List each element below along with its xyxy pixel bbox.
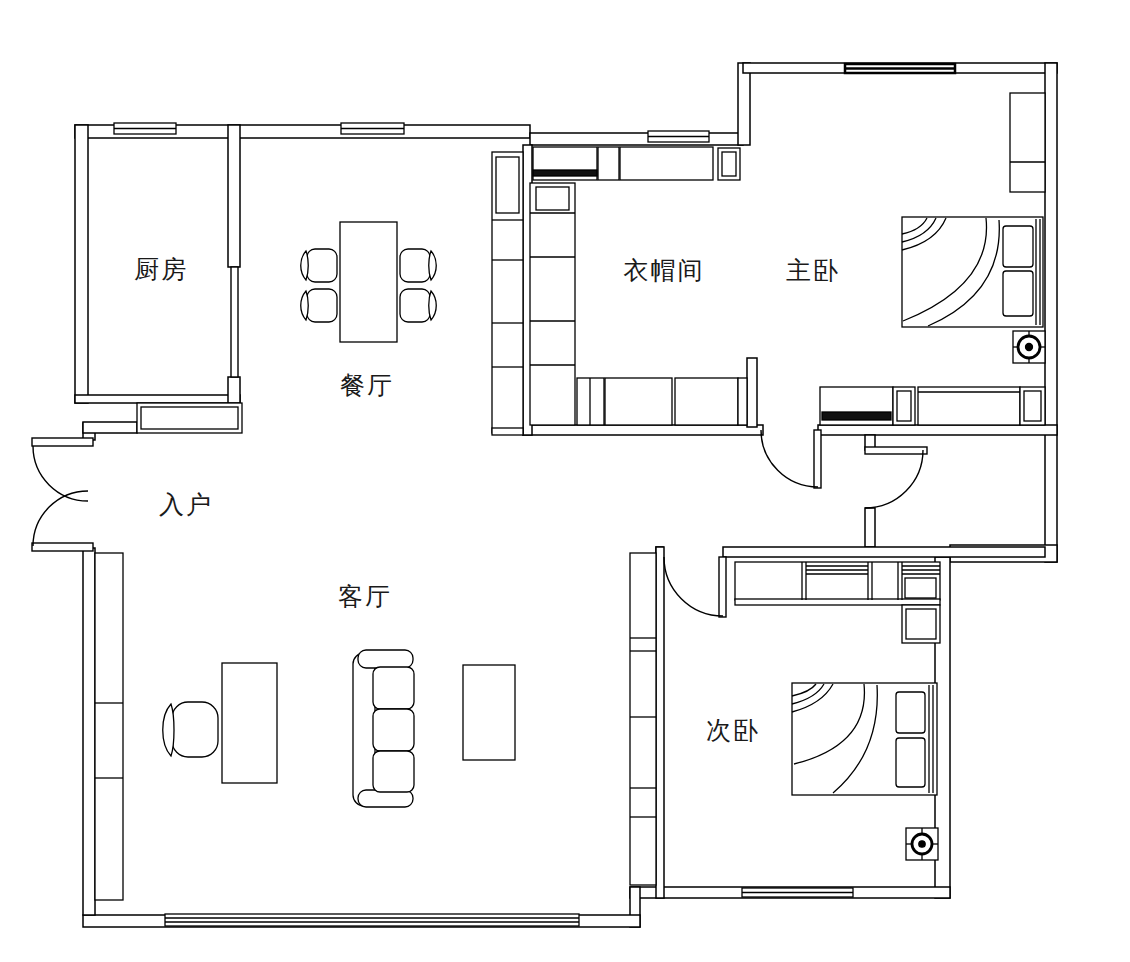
entry-double-door: [32, 438, 93, 551]
wall-left-lower: [83, 548, 95, 915]
wall-kitchen-left: [75, 125, 88, 403]
living-room-furniture: [95, 553, 515, 900]
room-label-cloakroom: 衣帽间: [624, 254, 705, 287]
bedroom2-door: [664, 557, 726, 617]
wall-right: [1045, 63, 1057, 562]
kitchen-sliding-door: [231, 267, 238, 377]
cloakroom-window: [648, 131, 709, 142]
wall-smallroom-left-bottom: [865, 508, 875, 547]
bedroom2-window: [742, 888, 853, 897]
second-bedroom-furniture: [630, 553, 940, 885]
room-label-second-bedroom: 次卧: [706, 714, 760, 747]
room-label-dining: 餐厅: [340, 369, 394, 402]
coffee-table: [463, 665, 515, 760]
wardrobe-bottom-right: [675, 378, 738, 425]
floor-drain-icon: [906, 828, 938, 860]
wall-kitchen-right-upper: [228, 125, 240, 267]
master-south-cabinets: [820, 387, 1045, 425]
room-label-kitchen: 厨房: [134, 253, 188, 286]
master-bed: [902, 217, 1043, 327]
dining-furniture: [301, 152, 523, 435]
sofa: [353, 650, 414, 807]
nightstand: [902, 605, 940, 643]
dining-table: [340, 222, 397, 342]
second-bed: [792, 683, 937, 795]
floor-drain-icon: [1013, 331, 1045, 363]
hallway-bookshelf: [630, 553, 656, 885]
wall-bedroom2-top: [723, 547, 1045, 557]
master-bedroom-furniture: [820, 93, 1045, 425]
pillow: [896, 692, 925, 733]
wall-entry-step: [83, 422, 137, 433]
pillow: [896, 738, 925, 787]
room-label-master-bedroom: 主卧: [786, 254, 840, 287]
wardrobe-left-column: [530, 183, 575, 425]
wall-bedroom2-left: [656, 547, 664, 898]
small-room-door: [865, 447, 927, 508]
wall-kitchen-right-lower: [228, 377, 240, 403]
shoe-cabinet: [137, 403, 242, 433]
desk-chair: [163, 702, 218, 757]
wardrobe-top-right: [620, 147, 713, 180]
wall-closet-top: [530, 133, 743, 145]
bedside-cabinet: [1010, 93, 1045, 192]
master-window: [845, 64, 955, 73]
master-suite-door: [761, 430, 821, 488]
pillow: [1003, 226, 1033, 267]
kitchen-window: [114, 123, 176, 134]
floor-plan: 厨房 餐厅 衣帽间 主卧 入户 客厅 次卧: [0, 0, 1130, 962]
tv-cabinet: [95, 553, 123, 900]
wall-kitchen-bottom: [75, 395, 240, 403]
living-window: [165, 914, 579, 926]
floor-plan-drawing: [0, 0, 1130, 962]
desk: [222, 663, 277, 783]
wall-suite-stub: [747, 358, 757, 427]
wall-mid-right: [818, 425, 1057, 435]
tall-cabinet: [492, 152, 523, 435]
room-label-living-room: 客厅: [338, 580, 392, 613]
dining-window: [341, 123, 404, 134]
room-label-entry: 入户: [159, 488, 213, 521]
pillow: [1003, 271, 1033, 316]
wall-mid-left: [523, 425, 763, 435]
bedroom2-wardrobe: [735, 562, 940, 605]
wall-step-top: [738, 63, 750, 145]
